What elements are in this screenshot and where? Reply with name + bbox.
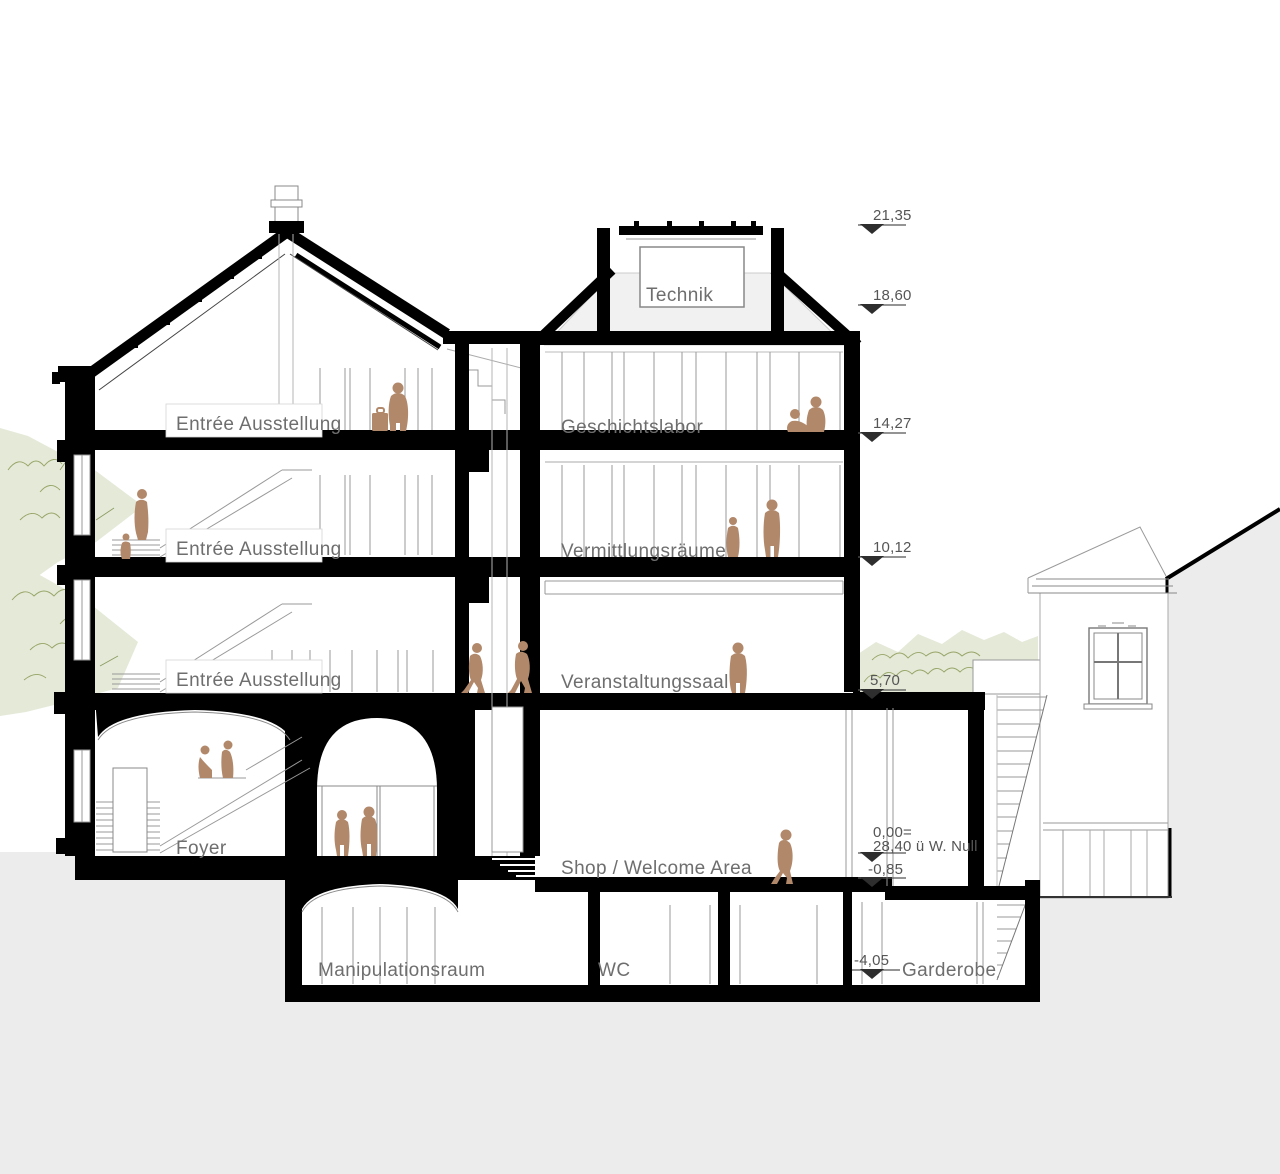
person-adult-stair (135, 489, 149, 540)
shop-floor-slab (535, 877, 892, 892)
extension-right-wall (968, 692, 984, 888)
svg-text:-4,05: -4,05 (854, 952, 889, 969)
level-marker-2135: 21,35 (858, 207, 912, 234)
roof-post-right (771, 228, 784, 331)
person-pair-foyer-stair (199, 741, 234, 779)
level-marker-1427: 14,27 (858, 415, 912, 442)
neighbor-gate (1063, 830, 1168, 897)
room-label-entree-mid: Entrée Ausstellung (176, 539, 342, 560)
room-label-entree-low: Entrée Ausstellung (176, 670, 342, 691)
room-label-foyer: Foyer (176, 838, 227, 859)
chimney-flue-lines (279, 234, 293, 428)
level-marker-1860: 18,60 (858, 287, 912, 314)
person-suitcase-entree-top (372, 383, 408, 432)
roof-underside-lines (99, 254, 438, 390)
foyer-vault-spandrel (95, 698, 290, 737)
person-walking-shop (771, 830, 793, 885)
wc-room-frames (670, 905, 817, 984)
building-section-drawing: Technik Entrée Ausstellung Geschichtslab… (0, 0, 1280, 1174)
svg-text:14,27: 14,27 (873, 415, 912, 432)
exterior-stair-steps (997, 697, 1046, 871)
svg-text:21,35: 21,35 (873, 207, 912, 224)
basement-wall-wc-right (718, 892, 730, 985)
canopy-ticks (634, 221, 756, 226)
person-standing-saal (730, 643, 747, 694)
svg-text:18,60: 18,60 (873, 287, 912, 304)
strip-pier-2 (467, 577, 489, 603)
chimney (269, 186, 304, 233)
neighbor-window-sill (1084, 704, 1152, 709)
central-right-wall (844, 345, 860, 692)
room-label-technik: Technik (646, 285, 713, 306)
foyer-door (113, 768, 147, 852)
svg-text:10,12: 10,12 (873, 539, 912, 556)
basement-right-wall (1025, 880, 1040, 1002)
party-wall (455, 333, 469, 705)
terrace-parapet (973, 660, 1042, 694)
person-child-vermittlung (727, 517, 740, 557)
roof-canopy (619, 226, 763, 235)
level-markers: 21,35 18,60 14,27 10,12 5,70 0,00= 28,40… (852, 207, 978, 979)
level-marker-405: -4,05 (852, 952, 900, 979)
roof-slope-right (287, 232, 447, 334)
person-child-stair (121, 534, 131, 560)
level-note: 28,40 ü W. Null (873, 838, 978, 855)
neighbor-cornice (1028, 579, 1177, 593)
room-label-entree-top: Entrée Ausstellung (176, 414, 342, 435)
room-label-veranstaltungssaal: Veranstaltungssaal (561, 672, 729, 693)
level-marker-1012: 10,12 (858, 539, 912, 566)
person-adult-vermittlung (764, 500, 781, 558)
level-marker-000: 0,00= 28,40 ü W. Null (858, 824, 978, 862)
left-wall-base-nub (56, 838, 65, 854)
eave-left-step (52, 372, 60, 384)
neighbor-hip-roof (1028, 527, 1166, 593)
garderobe-ceiling-slab (885, 886, 1040, 900)
room-label-garderobe: Garderobe (902, 960, 996, 981)
room-label-wc: WC (598, 960, 630, 981)
person-pair-geschichtslabor (787, 397, 825, 433)
room-label-vermittlungsraeume: Vermittlungsräume (561, 541, 726, 562)
left-wall-cornice-3 (54, 692, 65, 714)
svg-text:5,70: 5,70 (870, 672, 900, 689)
central-building-roof (528, 221, 860, 345)
neighbor-window (1084, 623, 1152, 709)
roof-post-left (597, 228, 610, 331)
room-label-manipulationsraum: Manipulationsraum (318, 960, 485, 981)
roof-inner-right (296, 255, 440, 347)
svg-text:-0,85: -0,85 (868, 861, 903, 878)
saal-suspended-ceiling (545, 581, 843, 594)
roof-slope-left (85, 232, 287, 377)
room-label-shop: Shop / Welcome Area (561, 858, 752, 879)
basement-left-wall (285, 880, 302, 1002)
basement-floor-slab (285, 985, 1040, 1002)
left-wall-cornice-1 (57, 440, 65, 462)
rear-wing-steps (463, 352, 505, 414)
strip-door-leaf (492, 707, 523, 852)
left-wall-cornice-2 (57, 565, 65, 585)
strip-pier-1 (467, 450, 489, 472)
neighbor-building (1028, 527, 1177, 898)
parapet-band (528, 331, 860, 345)
room-label-geschichtslabor: Geschichtslabor (561, 417, 704, 438)
basement-wall-garderobe (843, 892, 852, 985)
